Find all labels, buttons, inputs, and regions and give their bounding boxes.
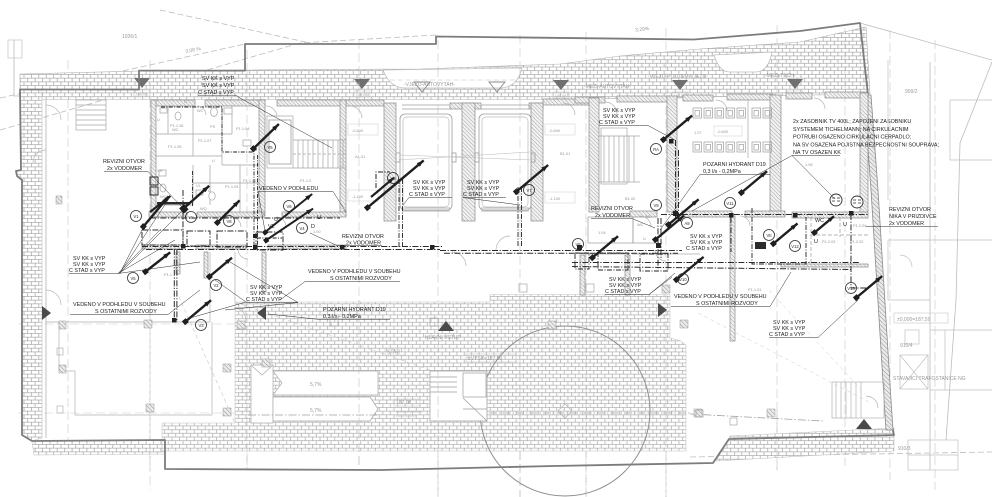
svg-text:VH: VH [157,168,163,173]
svg-text:910/4: 910/4 [900,343,913,349]
svg-text:0,3 l/s - 0,2MPa: 0,3 l/s - 0,2MPa [703,169,741,175]
svg-text:VEDENO V PODHLEDU V SOUBEHU: VEDENO V PODHLEDU V SOUBEHU [674,294,767,300]
svg-text:STAVAJICI TRAFOSTANICE NG: STAVAJICI TRAFOSTANICE NG [893,376,966,382]
svg-text:VEDENO V PODHLEDU: VEDENO V PODHLEDU [259,186,318,192]
svg-text:-0,600: -0,600 [549,128,561,133]
svg-text:U: U [208,188,211,193]
svg-text:-0,600: -0,600 [352,128,364,133]
svg-text:C STAD s VYP: C STAD s VYP [246,297,282,303]
svg-text:VEDENO V PODHLEDU V SOUBEHU: VEDENO V PODHLEDU V SOUBEHU [308,269,401,275]
svg-text:C STAD s VYP: C STAD s VYP [463,192,499,198]
svg-text:REVIZNI OTVOR: REVIZNI OTVOR [889,207,931,213]
svg-text:WQ: WQ [200,206,207,211]
svg-text:B1.01: B1.01 [560,151,570,156]
svg-text:P1.1.01: P1.1.01 [748,287,761,292]
svg-text:WC: WC [815,218,824,224]
svg-text:V4: V4 [299,226,305,231]
svg-text:V7: V7 [526,188,532,193]
svg-text:P1.1.07: P1.1.07 [198,138,211,143]
svg-text:P1.2.02: P1.2.02 [850,239,863,244]
svg-text:P1.1.05: P1.1.05 [168,144,181,149]
svg-text:C STAD s VYP: C STAD s VYP [605,289,641,295]
svg-text:V8: V8 [575,242,581,247]
svg-text:POZARNI HYDRANT D19: POZARNI HYDRANT D19 [323,307,386,313]
svg-text:SV KK s VYP: SV KK s VYP [202,76,235,82]
svg-text:U: U [157,117,160,122]
svg-text:1.08: 1.08 [805,162,813,167]
svg-text:5,7%: 5,7% [310,382,322,388]
svg-text:P1.1.0: P1.1.0 [300,178,312,183]
svg-text:1.00: 1.00 [313,229,321,234]
svg-text:S OSTATNIMI ROZVODY: S OSTATNIMI ROZVODY [95,309,157,315]
svg-text:VEDENO V PODHLEDU V SOUBEHU: VEDENO V PODHLEDU V SOUBEHU [73,302,166,308]
svg-text:-1,100: -1,100 [549,196,561,201]
svg-text:±VYSK=187,50: ±VYSK=187,50 [468,356,503,362]
svg-text:HLAVNI VSTUP: HLAVNI VSTUP [425,335,461,341]
svg-text:A1.01: A1.01 [355,154,365,159]
svg-text:U: U [843,222,847,228]
svg-text:V6: V6 [390,176,396,181]
svg-text:SV KK s VYP: SV KK s VYP [202,83,235,89]
svg-text:C STAD s VYP: C STAD s VYP [686,246,722,252]
svg-text:U: U [643,236,646,241]
svg-text:187,08: 187,08 [396,400,412,406]
svg-text:V5: V5 [130,276,136,281]
svg-text:C STAD s VYP: C STAD s VYP [69,268,105,274]
svg-text:1:50,KB: 1:50,KB [555,94,566,98]
svg-text:P1.2.04: P1.2.04 [853,223,867,228]
svg-text:V9: V9 [653,203,659,208]
svg-text:1.04: 1.04 [598,230,606,235]
svg-text:B1.02: B1.02 [625,196,635,201]
svg-text:V1: V1 [133,214,139,219]
svg-text:A9: A9 [684,221,690,226]
svg-text:U: U [184,99,187,104]
svg-text:VII: VII [188,215,193,220]
svg-text:P1.1.04: P1.1.04 [236,126,250,131]
svg-text:SYSTEMEM TICHELMANN; NA CIRKUL: SYSTEMEM TICHELMANN; NA CIRKULACNIM [793,127,909,133]
svg-text:P1.1.03: P1.1.03 [225,184,238,189]
svg-text:C STAD s VYP: C STAD s VYP [409,192,445,198]
svg-text:VL: VL [196,183,202,188]
svg-text:1036/1: 1036/1 [122,34,138,40]
svg-text:V2: V2 [213,283,219,288]
svg-text:VII: VII [766,233,771,238]
svg-text:V5: V5 [267,145,273,150]
svg-text:C STAD s VYP: C STAD s VYP [599,120,635,126]
svg-text:-0,600: -0,600 [717,129,729,134]
svg-text:5,7%: 5,7% [310,408,322,414]
svg-text:909/2: 909/2 [905,89,918,95]
svg-text:U: U [814,239,818,245]
svg-text:1:50,KB: 1:50,KB [356,93,367,97]
svg-text:U: U [212,158,215,163]
svg-text:-VJEZD-PODZEM-VJEZD-: -VJEZD-PODZEM-VJEZD- [648,74,708,80]
svg-text:REVIZNI OTVOR: REVIZNI OTVOR [342,234,384,240]
svg-text:S OSTATNIMI ROZVODY: S OSTATNIMI ROZVODY [696,301,758,307]
svg-text:0,3 l/s - 0,2MPa: 0,3 l/s - 0,2MPa [323,314,361,320]
svg-text:POTRUBI OSAZENO CIRKULACNI CER: POTRUBI OSAZENO CIRKULACNI CERPADLO; [793,135,912,141]
svg-text:V13: V13 [847,286,855,291]
svg-text:C STAD s VYP: C STAD s VYP [769,332,805,338]
svg-text:REVIZNI OTVOR: REVIZNI OTVOR [591,206,633,212]
svg-text:2x VODOMER: 2x VODOMER [889,221,924,227]
svg-text:RA: RA [653,147,659,152]
svg-text:P1.1.08: P1.1.08 [170,123,183,128]
svg-text:REVIZNI OTVOR: REVIZNI OTVOR [103,159,145,165]
svg-text:PS: PS [210,124,216,129]
svg-text:P1.2.03: P1.2.03 [822,239,835,244]
svg-text:V3: V3 [198,323,204,328]
svg-text:WC: WC [197,108,204,113]
svg-text:2x VODOMER: 2x VODOMER [107,166,142,172]
svg-text:P1.1: P1.1 [164,272,172,277]
svg-text:V11: V11 [726,201,734,206]
svg-text:STAR: STAR [387,350,400,356]
svg-text:-MEZI-TECH-: -MEZI-TECH- [765,73,796,79]
svg-text:1.07: 1.07 [694,130,702,135]
svg-text:NIKA V PRIZDIVCE: NIKA V PRIZDIVCE [889,214,937,220]
svg-text:2x ZASOBNIK TV 400L; ZAPOJENI: 2x ZASOBNIK TV 400L; ZAPOJENI ZASOBNIKU [793,119,911,125]
svg-text:BS: BS [645,214,651,219]
svg-text:V12: V12 [791,244,799,249]
svg-text:1:50,KB: 1:50,KB [136,92,147,96]
svg-text:V10: V10 [679,277,687,282]
svg-text:910/3: 910/3 [898,446,911,452]
svg-text:V6: V6 [286,204,292,209]
svg-text:2x VODOMER: 2x VODOMER [595,213,630,219]
svg-text:V8: V8 [226,219,232,224]
svg-text:-MEZI-AUTOVYTAH-: -MEZI-AUTOVYTAH- [584,84,631,90]
svg-text:POZARNI HYDRANT D19: POZARNI HYDRANT D19 [703,162,766,168]
svg-text:±0,000=187,50: ±0,000=187,50 [897,317,931,323]
svg-text:NA SV OSAZENA POJISTNA BEZPECN: NA SV OSAZENA POJISTNA BEZPECNOSTNI SOUP… [793,142,939,148]
svg-text:S OSTATNIMI ROZVODY: S OSTATNIMI ROZVODY [330,276,392,282]
svg-text:-1,100: -1,100 [352,194,364,199]
